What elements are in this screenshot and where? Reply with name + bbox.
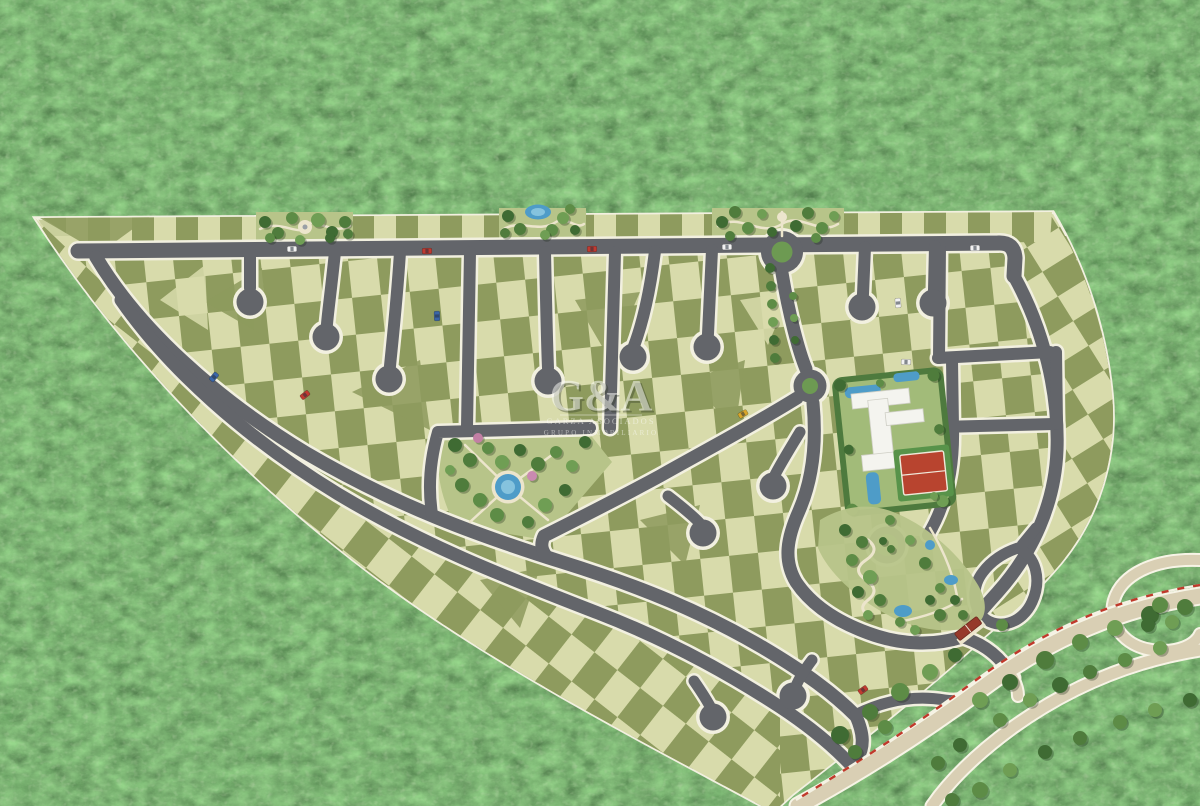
linear-park-pool-1 (894, 605, 912, 617)
clubhouse-complex (831, 366, 957, 519)
tree (789, 292, 797, 300)
tree (922, 664, 938, 680)
tree (1073, 731, 1087, 745)
tree (811, 233, 821, 243)
car-windshield (896, 301, 900, 305)
tree (1003, 763, 1017, 777)
tree (579, 436, 591, 448)
tree (910, 625, 920, 635)
tree (862, 704, 878, 720)
tree (559, 484, 571, 496)
park-kiosk (777, 212, 787, 222)
site-plan-svg: G&A G&A GARZA ASOCIADOS GRUPO INMOBILIAR… (0, 0, 1200, 806)
tree (325, 233, 335, 243)
tree (757, 209, 767, 219)
tree (495, 455, 509, 469)
tree (566, 460, 578, 472)
car-windshield (425, 249, 428, 253)
car-windshield (435, 314, 439, 317)
tree (919, 557, 931, 569)
tree (848, 745, 862, 759)
splash-pool-shallow (531, 208, 545, 216)
watermark-line2: GRUPO INMOBILIARIO (544, 429, 658, 437)
tree (343, 229, 353, 239)
mid-roundabout-island (802, 378, 818, 394)
tree (767, 299, 777, 309)
car-windshield (590, 247, 593, 251)
tree (790, 314, 798, 322)
car-white (895, 298, 901, 308)
tree (490, 508, 504, 522)
tree (767, 227, 777, 237)
tree (791, 336, 799, 344)
tree (1072, 634, 1088, 650)
tree (502, 210, 514, 222)
tree (500, 228, 510, 238)
tree (846, 554, 858, 566)
tree (839, 524, 851, 536)
tree (570, 225, 580, 235)
tree (286, 212, 298, 224)
tree (522, 516, 534, 528)
tree (1052, 677, 1068, 693)
park-fountain (303, 225, 308, 230)
tree (531, 457, 545, 471)
tree (742, 222, 754, 234)
tree (953, 738, 967, 752)
tree (729, 206, 741, 218)
tree (550, 446, 562, 458)
car-red (422, 248, 432, 254)
tree (931, 756, 945, 770)
tree (716, 216, 728, 228)
car-white (722, 244, 732, 250)
tree (950, 595, 960, 605)
tree (802, 207, 814, 219)
watermark-line1: GARZA ASOCIADOS (546, 416, 655, 426)
masterplan-aerial-render: G&A G&A GARZA ASOCIADOS GRUPO INMOBILIAR… (0, 0, 1200, 806)
tree (1177, 599, 1193, 615)
tree (958, 610, 968, 620)
tree (879, 537, 887, 545)
park-pond-center (501, 480, 515, 494)
entry-roundabout-island (772, 242, 793, 263)
tree (540, 230, 550, 240)
watermark-logo: G&A (550, 371, 653, 420)
tree (1152, 597, 1168, 613)
tree (766, 281, 776, 291)
tree (473, 493, 487, 507)
tree (770, 353, 780, 363)
tree (514, 444, 526, 456)
car-white (901, 359, 911, 365)
car-windshield (290, 247, 293, 251)
tree (895, 617, 905, 627)
tree (972, 782, 988, 798)
tree (339, 216, 351, 228)
tree (878, 720, 892, 734)
tree (765, 263, 775, 273)
car-windshield (904, 360, 907, 364)
tree (948, 648, 962, 662)
tree (1153, 641, 1167, 655)
tree (295, 235, 305, 245)
tree (259, 216, 271, 228)
tree (565, 204, 575, 214)
tree (1002, 674, 1018, 690)
tree (482, 442, 494, 454)
tree (816, 222, 828, 234)
tree (905, 535, 915, 545)
tree (311, 213, 325, 227)
tree (996, 619, 1008, 631)
tree (1107, 620, 1123, 636)
car-red (587, 246, 597, 252)
tree (473, 433, 483, 443)
tree (463, 453, 477, 467)
tree (768, 317, 778, 327)
tree (557, 212, 569, 224)
car-blue (434, 311, 440, 321)
linear-park-pool-2 (944, 575, 958, 585)
car-white (970, 245, 980, 251)
tree (852, 586, 864, 598)
tree (934, 609, 946, 621)
tree (1183, 693, 1197, 707)
tree (1118, 653, 1132, 667)
tree (874, 594, 886, 606)
tree (972, 692, 988, 708)
tree (925, 595, 935, 605)
tree (1083, 665, 1097, 679)
car-white (287, 246, 297, 252)
car-windshield (973, 246, 976, 250)
tree (829, 211, 839, 221)
tree (1113, 715, 1127, 729)
tree (445, 465, 455, 475)
tree (1023, 693, 1037, 707)
tree (527, 471, 537, 481)
tree (1148, 703, 1162, 717)
tree (725, 231, 735, 241)
car-windshield (725, 245, 728, 249)
tree (1038, 745, 1052, 759)
tree (1165, 615, 1179, 629)
tree (1141, 618, 1155, 632)
tree (448, 438, 462, 452)
tree (514, 223, 526, 235)
linear-park-pool-3 (925, 540, 935, 550)
tree (769, 335, 779, 345)
tree (790, 220, 802, 232)
tree (856, 536, 868, 548)
tree (831, 726, 849, 744)
tree (887, 545, 895, 553)
tree (935, 583, 945, 593)
tree (885, 515, 895, 525)
tree (538, 498, 552, 512)
tree (993, 713, 1007, 727)
tree (1036, 651, 1054, 669)
tree (891, 683, 909, 701)
tree (863, 570, 877, 584)
tree (455, 478, 469, 492)
tree (265, 233, 275, 243)
tree (863, 610, 873, 620)
